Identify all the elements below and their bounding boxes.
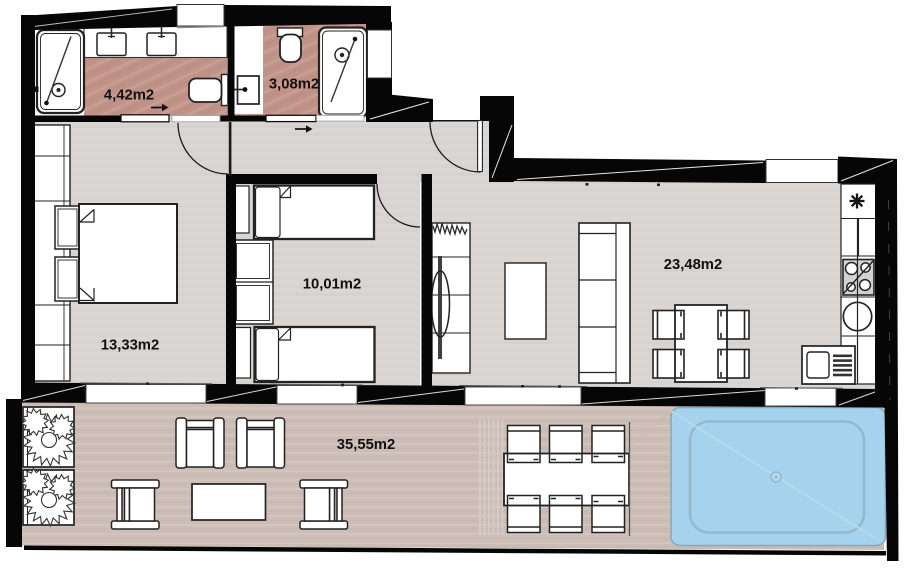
- svg-text:23,48m2: 23,48m2: [664, 257, 722, 273]
- svg-text:13,33m2: 13,33m2: [101, 338, 159, 354]
- svg-text:4,42m2: 4,42m2: [104, 88, 154, 104]
- svg-text:10,01m2: 10,01m2: [303, 277, 361, 293]
- svg-text:3,08m2: 3,08m2: [269, 77, 319, 93]
- svg-text:35,55m2: 35,55m2: [337, 437, 395, 453]
